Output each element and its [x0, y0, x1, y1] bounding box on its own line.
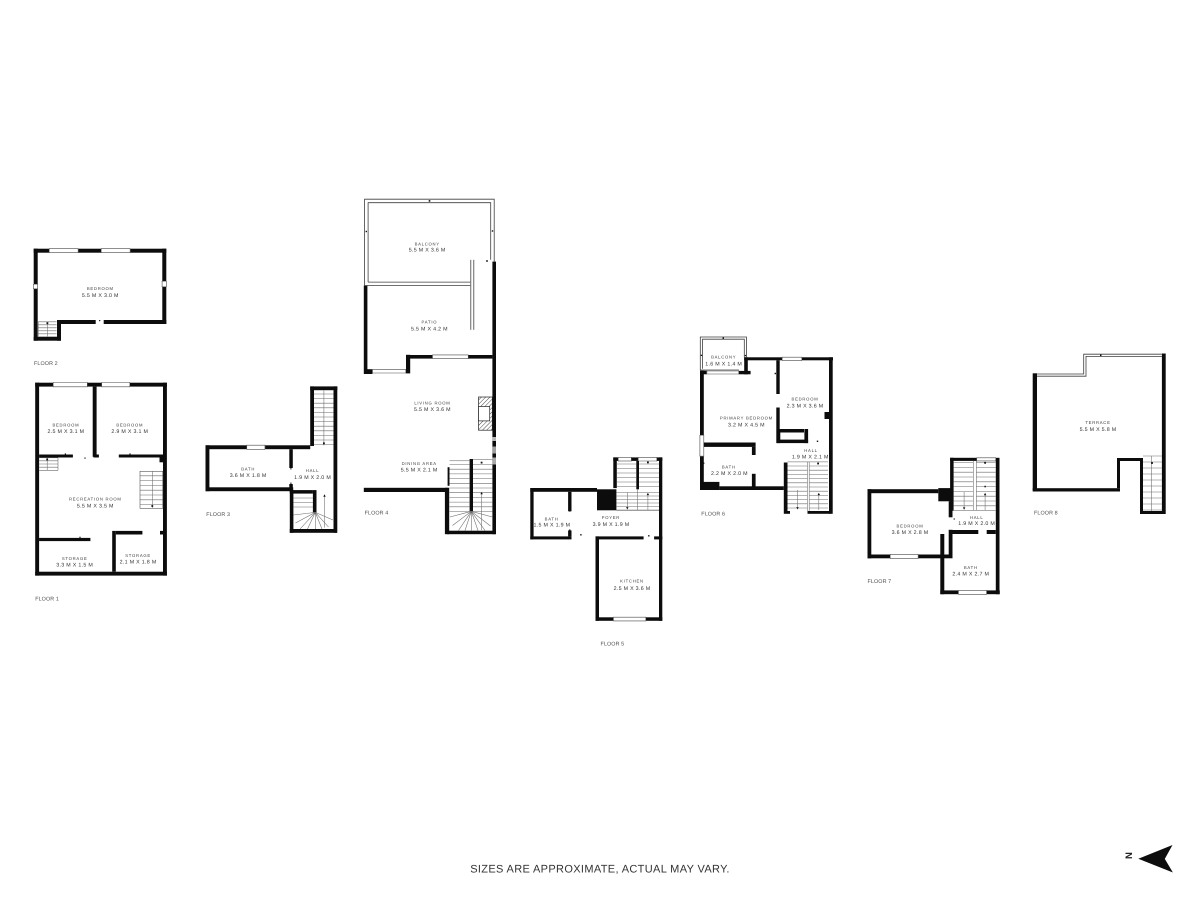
- svg-text:3.6 M X 1.8 M: 3.6 M X 1.8 M: [230, 473, 267, 479]
- svg-text:SIZES ARE APPROXIMATE, ACTUAL: SIZES ARE APPROXIMATE, ACTUAL MAY VARY.: [470, 864, 730, 876]
- svg-text:HALL: HALL: [306, 468, 319, 473]
- svg-text:BEDROOM: BEDROOM: [116, 422, 143, 427]
- svg-text:BALCONY: BALCONY: [415, 242, 440, 247]
- svg-text:LIVING ROOM: LIVING ROOM: [414, 400, 450, 405]
- svg-text:2.2 M X 2.0 M: 2.2 M X 2.0 M: [711, 471, 748, 477]
- svg-text:BATH: BATH: [964, 565, 978, 570]
- svg-text:FLOOR 7: FLOOR 7: [868, 579, 892, 585]
- svg-text:2.5 M X 3.6 M: 2.5 M X 3.6 M: [614, 586, 651, 592]
- svg-text:5.5 M X 2.1 M: 5.5 M X 2.1 M: [401, 468, 438, 474]
- svg-text:5.5 M X 3.6 M: 5.5 M X 3.6 M: [409, 247, 446, 253]
- svg-text:1.9 M X 2.0 M: 1.9 M X 2.0 M: [958, 521, 995, 527]
- svg-text:FLOOR 2: FLOOR 2: [34, 361, 58, 367]
- svg-text:BEDROOM: BEDROOM: [897, 523, 924, 528]
- svg-text:3.9 M X 1.9 M: 3.9 M X 1.9 M: [593, 522, 630, 528]
- svg-text:TERRACE: TERRACE: [1085, 420, 1110, 425]
- svg-text:FLOOR 1: FLOOR 1: [35, 597, 59, 603]
- svg-text:5.5 M X 3.0 M: 5.5 M X 3.0 M: [82, 293, 119, 299]
- svg-text:2.9 M X 3.1 M: 2.9 M X 3.1 M: [111, 429, 148, 435]
- svg-text:2.3 M X 3.6 M: 2.3 M X 3.6 M: [787, 403, 824, 409]
- svg-text:STORAGE: STORAGE: [125, 553, 151, 558]
- svg-text:3.6 M X 2.8 M: 3.6 M X 2.8 M: [892, 530, 929, 536]
- svg-text:FLOOR 6: FLOOR 6: [701, 511, 725, 517]
- svg-text:BATH: BATH: [545, 517, 559, 522]
- svg-text:KITCHEN: KITCHEN: [620, 578, 644, 583]
- svg-text:3.3 M X 1.5 M: 3.3 M X 1.5 M: [56, 562, 93, 568]
- svg-text:N: N: [1123, 852, 1134, 859]
- svg-text:DINING AREA: DINING AREA: [402, 461, 437, 466]
- svg-text:5.5 M X 3.5 M: 5.5 M X 3.5 M: [77, 503, 114, 509]
- svg-text:PRIMARY BEDROOM: PRIMARY BEDROOM: [720, 416, 773, 421]
- svg-text:BEDROOM: BEDROOM: [52, 422, 79, 427]
- svg-text:1.5 M X 1.9 M: 1.5 M X 1.9 M: [533, 523, 570, 529]
- svg-text:STORAGE: STORAGE: [62, 556, 88, 561]
- svg-text:PATIO: PATIO: [422, 320, 438, 325]
- svg-text:3.2 M X 4.5 M: 3.2 M X 4.5 M: [728, 422, 765, 428]
- svg-text:1.6 M X 1.4 M: 1.6 M X 1.4 M: [705, 361, 742, 367]
- svg-text:FLOOR 4: FLOOR 4: [365, 511, 389, 517]
- svg-text:BATH: BATH: [722, 464, 736, 469]
- svg-text:HALL: HALL: [804, 448, 817, 453]
- svg-text:5.5 M X 5.8 M: 5.5 M X 5.8 M: [1080, 427, 1117, 433]
- svg-text:FLOOR 5: FLOOR 5: [601, 641, 625, 647]
- svg-text:2.4 M X 2.7 M: 2.4 M X 2.7 M: [952, 571, 989, 577]
- svg-text:BALCONY: BALCONY: [711, 354, 736, 359]
- svg-text:RECREATION ROOM: RECREATION ROOM: [69, 497, 122, 502]
- svg-text:FOYER: FOYER: [602, 515, 620, 520]
- svg-text:2.1 M X 1.8 M: 2.1 M X 1.8 M: [120, 559, 157, 565]
- svg-text:5.5 M X 4.2 M: 5.5 M X 4.2 M: [411, 326, 448, 332]
- svg-text:1.9 M X 2.1 M: 1.9 M X 2.1 M: [792, 455, 829, 461]
- svg-text:BEDROOM: BEDROOM: [87, 286, 114, 291]
- svg-text:FLOOR 8: FLOOR 8: [1034, 510, 1058, 516]
- svg-text:FLOOR 3: FLOOR 3: [206, 512, 230, 518]
- svg-text:1.9 M X 2.0 M: 1.9 M X 2.0 M: [294, 475, 331, 481]
- svg-text:5.5 M X 3.6 M: 5.5 M X 3.6 M: [414, 407, 451, 413]
- svg-text:BEDROOM: BEDROOM: [792, 397, 819, 402]
- svg-text:2.5 M X 3.1 M: 2.5 M X 3.1 M: [47, 429, 84, 435]
- svg-text:HALL: HALL: [970, 515, 983, 520]
- svg-text:BATH: BATH: [241, 466, 255, 471]
